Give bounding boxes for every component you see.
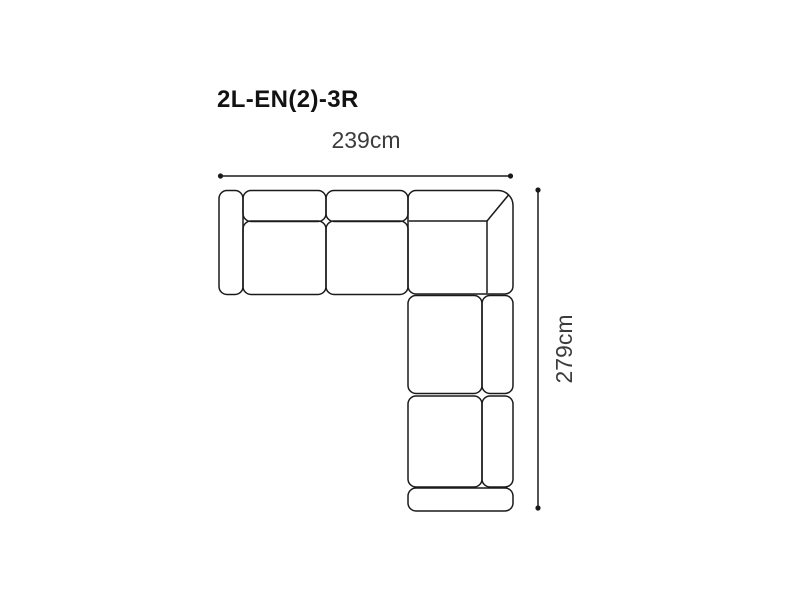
dimension-endpoint-dot — [535, 505, 540, 510]
dimension-endpoint-dot — [535, 187, 540, 192]
back-cushion-4-shape — [482, 396, 513, 487]
sofa-outline — [219, 191, 513, 512]
left-armrest-shape — [219, 191, 243, 295]
sofa-top-view-drawing — [0, 0, 800, 600]
corner-unit-diagonal-seam — [487, 195, 509, 221]
seat-cushion-2-shape — [326, 221, 408, 295]
seat-cushion-4-shape — [408, 396, 482, 487]
back-cushion-2-shape — [326, 191, 408, 222]
height-dimension-line — [535, 187, 540, 510]
dimension-endpoint-dot — [508, 173, 513, 178]
corner-unit-seam-lines — [409, 221, 487, 293]
sofa-dimension-diagram: 2L-EN(2)-3R 239cm 279cm — [0, 0, 800, 600]
dimension-endpoint-dot — [218, 173, 223, 178]
width-dimension-line — [218, 173, 513, 178]
seat-cushion-1-shape — [243, 221, 326, 295]
back-cushion-1-shape — [243, 191, 326, 222]
corner-unit-shape — [408, 191, 513, 295]
back-cushion-3-shape — [482, 296, 513, 394]
bottom-armrest-shape — [408, 488, 513, 511]
seat-cushion-3-shape — [408, 296, 482, 394]
